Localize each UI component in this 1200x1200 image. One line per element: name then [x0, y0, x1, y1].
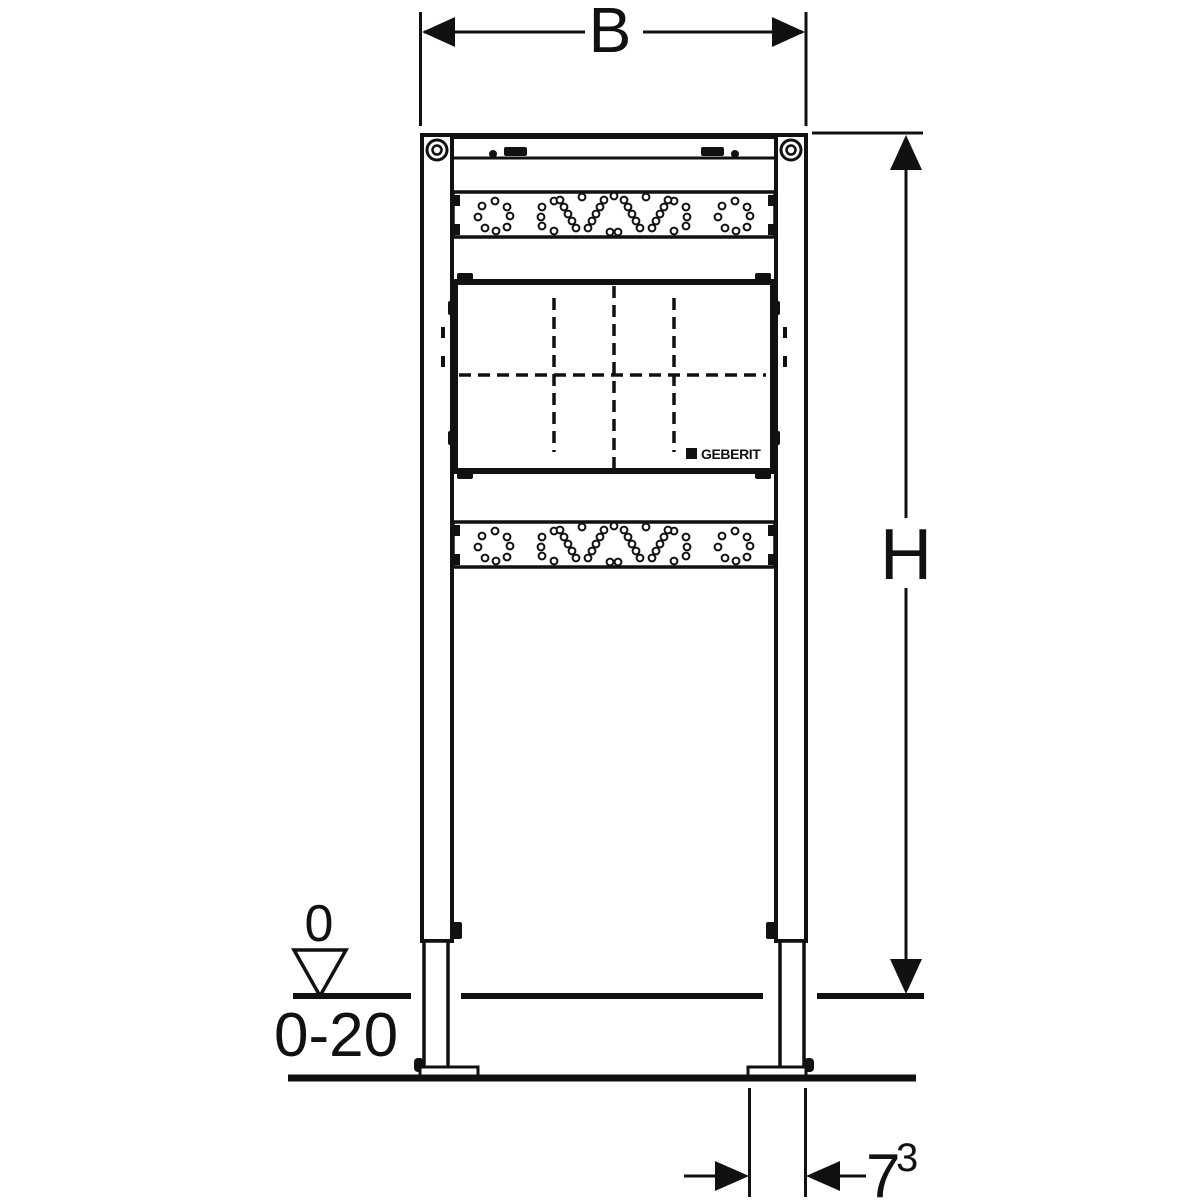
upright-slot	[441, 327, 445, 338]
frame-left-upright	[422, 135, 452, 941]
perforation-hole	[744, 204, 751, 211]
perforation-hole	[649, 555, 656, 562]
perforation-hole	[539, 553, 546, 560]
perforation-hole	[683, 534, 690, 541]
perforation-hole	[732, 198, 739, 205]
perforation-hole	[551, 228, 558, 235]
perforation-hole	[551, 558, 558, 565]
perforation-hole	[643, 194, 650, 201]
hanger-rail-lower-tab-right	[755, 470, 771, 479]
perforation-hole	[683, 204, 690, 211]
perforation-hole	[561, 534, 568, 541]
panel-clip	[770, 431, 780, 445]
perforation-hole	[597, 204, 604, 211]
hanger-rail-upper-tab-left	[457, 273, 473, 282]
perforation-hole	[637, 555, 644, 562]
perforation-hole	[493, 228, 500, 235]
perforation-hole	[573, 225, 580, 232]
perforation-hole	[625, 204, 632, 211]
upright-slot	[783, 356, 787, 367]
frame-right-upright	[776, 135, 806, 941]
perforation-hole	[665, 197, 672, 204]
perforation-hole	[475, 544, 482, 551]
perforation-hole	[719, 533, 726, 540]
perforated-rail-top	[452, 192, 776, 237]
perforation-hole	[615, 559, 622, 566]
perforation-hole	[573, 555, 580, 562]
perforation-hole	[733, 228, 740, 235]
perforation-hole	[479, 533, 486, 540]
perforation-hole	[633, 218, 640, 225]
perforation-hole	[475, 214, 482, 221]
perforation-hole	[621, 527, 628, 534]
perforation-hole	[601, 527, 608, 534]
technical-drawing: B	[0, 0, 1200, 1200]
perforation-hole	[629, 541, 636, 548]
perforation-hole	[684, 214, 691, 221]
perforation-hole	[565, 211, 572, 218]
leg-clamp-left	[452, 922, 462, 939]
perforation-hole	[507, 213, 514, 220]
perforation-hole	[715, 214, 722, 221]
perforation-hole	[683, 223, 690, 230]
rail-bottom-hook	[768, 554, 776, 565]
perforation-hole	[585, 555, 592, 562]
rail-top-hook	[768, 195, 776, 206]
technical-drawing-page: B	[0, 0, 1200, 1200]
perforation-hole	[538, 544, 545, 551]
rail-bottom-hook	[452, 525, 460, 536]
perforation-hole	[744, 554, 751, 561]
perforation-hole	[732, 528, 739, 535]
perforation-hole	[744, 224, 751, 231]
frame-top-bar	[420, 133, 808, 139]
foot-depth-footnote: 3	[896, 1136, 918, 1180]
panel-clip	[770, 301, 780, 315]
perforation-hole	[671, 228, 678, 235]
perforation-hole	[589, 548, 596, 555]
perforation-hole	[557, 527, 564, 534]
perforation-hole	[747, 213, 754, 220]
perforation-hole	[643, 524, 650, 531]
perforation-hole	[625, 534, 632, 541]
perforation-hole	[482, 225, 489, 232]
perforation-hole	[539, 534, 546, 541]
perforation-hole	[683, 553, 690, 560]
floor-range-label: 0-20	[274, 1001, 398, 1070]
perforation-hole	[557, 197, 564, 204]
rail-bottom-hook	[768, 525, 776, 536]
perforation-hole	[493, 558, 500, 565]
perforation-hole	[615, 229, 622, 236]
top-rail-dot-right	[731, 150, 739, 158]
corner-fixing-hole-right-inner	[787, 146, 796, 155]
datum-zero-label: 0	[305, 895, 334, 953]
leg-clamp-right	[766, 922, 776, 939]
perforation-hole	[593, 211, 600, 218]
perforation-hole	[747, 543, 754, 550]
perforation-hole	[601, 197, 608, 204]
perforation-hole	[653, 548, 660, 555]
perforation-hole	[492, 198, 499, 205]
perforation-hole	[629, 211, 636, 218]
rail-top-hook	[452, 224, 460, 235]
perforation-hole	[589, 218, 596, 225]
perforation-hole	[611, 193, 618, 200]
perforation-hole	[633, 548, 640, 555]
perforation-hole	[637, 225, 644, 232]
perforation-hole	[744, 534, 751, 541]
perforation-hole	[661, 534, 668, 541]
perforation-hole	[507, 543, 514, 550]
perforation-hole	[504, 224, 511, 231]
leg-right	[780, 941, 804, 1071]
panel-clip	[448, 431, 458, 445]
perforation-hole	[657, 211, 664, 218]
perforation-hole	[661, 204, 668, 211]
perforation-hole	[569, 548, 576, 555]
rail-bottom-hook	[452, 554, 460, 565]
brand-logo-square	[686, 448, 697, 459]
perforation-hole	[665, 527, 672, 534]
perforation-hole	[565, 541, 572, 548]
perforation-hole	[561, 204, 568, 211]
perforated-rail-bottom	[452, 522, 776, 567]
perforation-hole	[607, 559, 614, 566]
perforation-hole	[657, 541, 664, 548]
perforation-hole	[579, 524, 586, 531]
hanger-rail-upper-tab-right	[755, 273, 771, 282]
perforation-hole	[653, 218, 660, 225]
perforation-hole	[539, 204, 546, 211]
top-rail-dot-left	[489, 150, 497, 158]
leg-left	[424, 941, 448, 1071]
perforation-hole	[684, 544, 691, 551]
corner-fixing-hole-left-inner	[433, 146, 442, 155]
perforation-hole	[492, 528, 499, 535]
hanger-rail-lower-tab-left	[457, 470, 473, 479]
brand-logo-text: GEBERIT	[701, 446, 761, 462]
perforation-hole	[621, 197, 628, 204]
perforation-hole	[719, 203, 726, 210]
perforation-hole	[715, 544, 722, 551]
rail-top-hook	[452, 195, 460, 206]
perforation-hole	[649, 225, 656, 232]
height-dimension-label: H	[880, 515, 932, 595]
perforation-hole	[569, 218, 576, 225]
perforation-hole	[593, 541, 600, 548]
width-dimension-label: B	[589, 0, 632, 66]
perforation-hole	[482, 555, 489, 562]
perforation-hole	[722, 555, 729, 562]
perforation-hole	[504, 554, 511, 561]
perforation-hole	[538, 214, 545, 221]
top-rail-tab-right	[701, 147, 724, 156]
upright-slot	[441, 356, 445, 367]
perforation-hole	[579, 194, 586, 201]
perforation-hole	[597, 534, 604, 541]
perforation-hole	[504, 534, 511, 541]
upright-slot	[783, 327, 787, 338]
perforation-hole	[733, 558, 740, 565]
rail-top-hook	[768, 224, 776, 235]
perforation-hole	[479, 203, 486, 210]
perforation-hole	[722, 225, 729, 232]
perforation-hole	[539, 223, 546, 230]
panel-clip	[448, 301, 458, 315]
perforation-hole	[611, 523, 618, 530]
perforation-hole	[607, 229, 614, 236]
perforation-hole	[671, 558, 678, 565]
perforation-hole	[504, 204, 511, 211]
top-rail-tab-left	[504, 147, 527, 156]
drawing-background	[0, 0, 1200, 1200]
perforation-hole	[585, 225, 592, 232]
